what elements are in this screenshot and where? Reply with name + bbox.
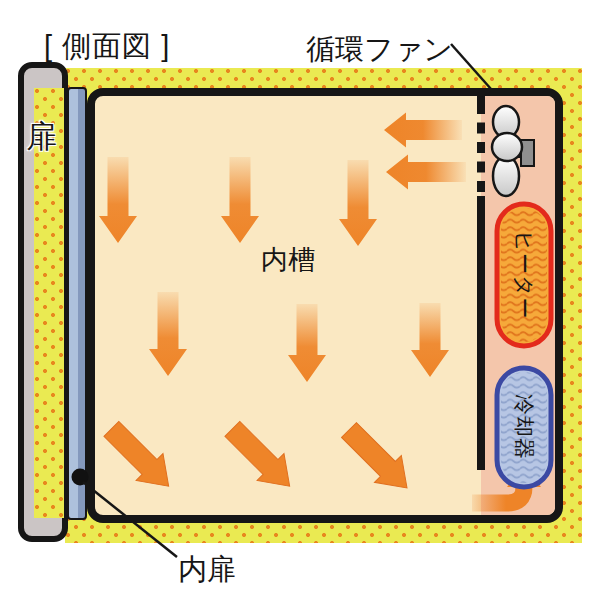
diagram-overlay: ヒーター 冷却器 bbox=[0, 0, 600, 600]
fan-blade-middle bbox=[492, 133, 522, 161]
airflow-arrow-left-2 bbox=[386, 155, 466, 190]
airflow-arrow-down-3 bbox=[339, 160, 377, 246]
fan-motor bbox=[521, 140, 534, 166]
airflow-arrows bbox=[98, 113, 541, 504]
airflow-arrow-down-2 bbox=[221, 157, 259, 243]
heater: ヒーター bbox=[497, 204, 551, 346]
airflow-arrow-diagonal-1 bbox=[98, 415, 182, 499]
inner-chamber-label: 内槽 bbox=[261, 242, 315, 278]
cooler-label: 冷却器 bbox=[513, 394, 536, 460]
side-view-diagram: ヒーター 冷却器 [ 側面図 ] 循環ファン 扉 内槽 内扉 bbox=[0, 0, 600, 600]
airflow-arrow-down-1 bbox=[99, 157, 137, 243]
page-title: [ 側面図 ] bbox=[44, 27, 170, 67]
circulation-fan bbox=[492, 106, 534, 196]
cooler: 冷却器 bbox=[497, 368, 551, 487]
inner-door-label: 内扉 bbox=[178, 550, 236, 590]
fan-leader-line bbox=[451, 44, 491, 89]
airflow-arrow-diagonal-3 bbox=[336, 417, 421, 502]
airflow-arrow-down-4 bbox=[149, 292, 187, 376]
airflow-arrow-down-5 bbox=[288, 304, 326, 382]
airflow-arrow-down-6 bbox=[411, 303, 449, 377]
circulation-fan-label: 循環ファン bbox=[306, 30, 453, 70]
inner-door-leader-line bbox=[83, 482, 177, 557]
airflow-arrow-diagonal-2 bbox=[219, 415, 303, 499]
door-label: 扉 bbox=[26, 116, 57, 158]
heater-label: ヒーター bbox=[513, 231, 536, 320]
airflow-arrow-left-1 bbox=[384, 113, 462, 148]
